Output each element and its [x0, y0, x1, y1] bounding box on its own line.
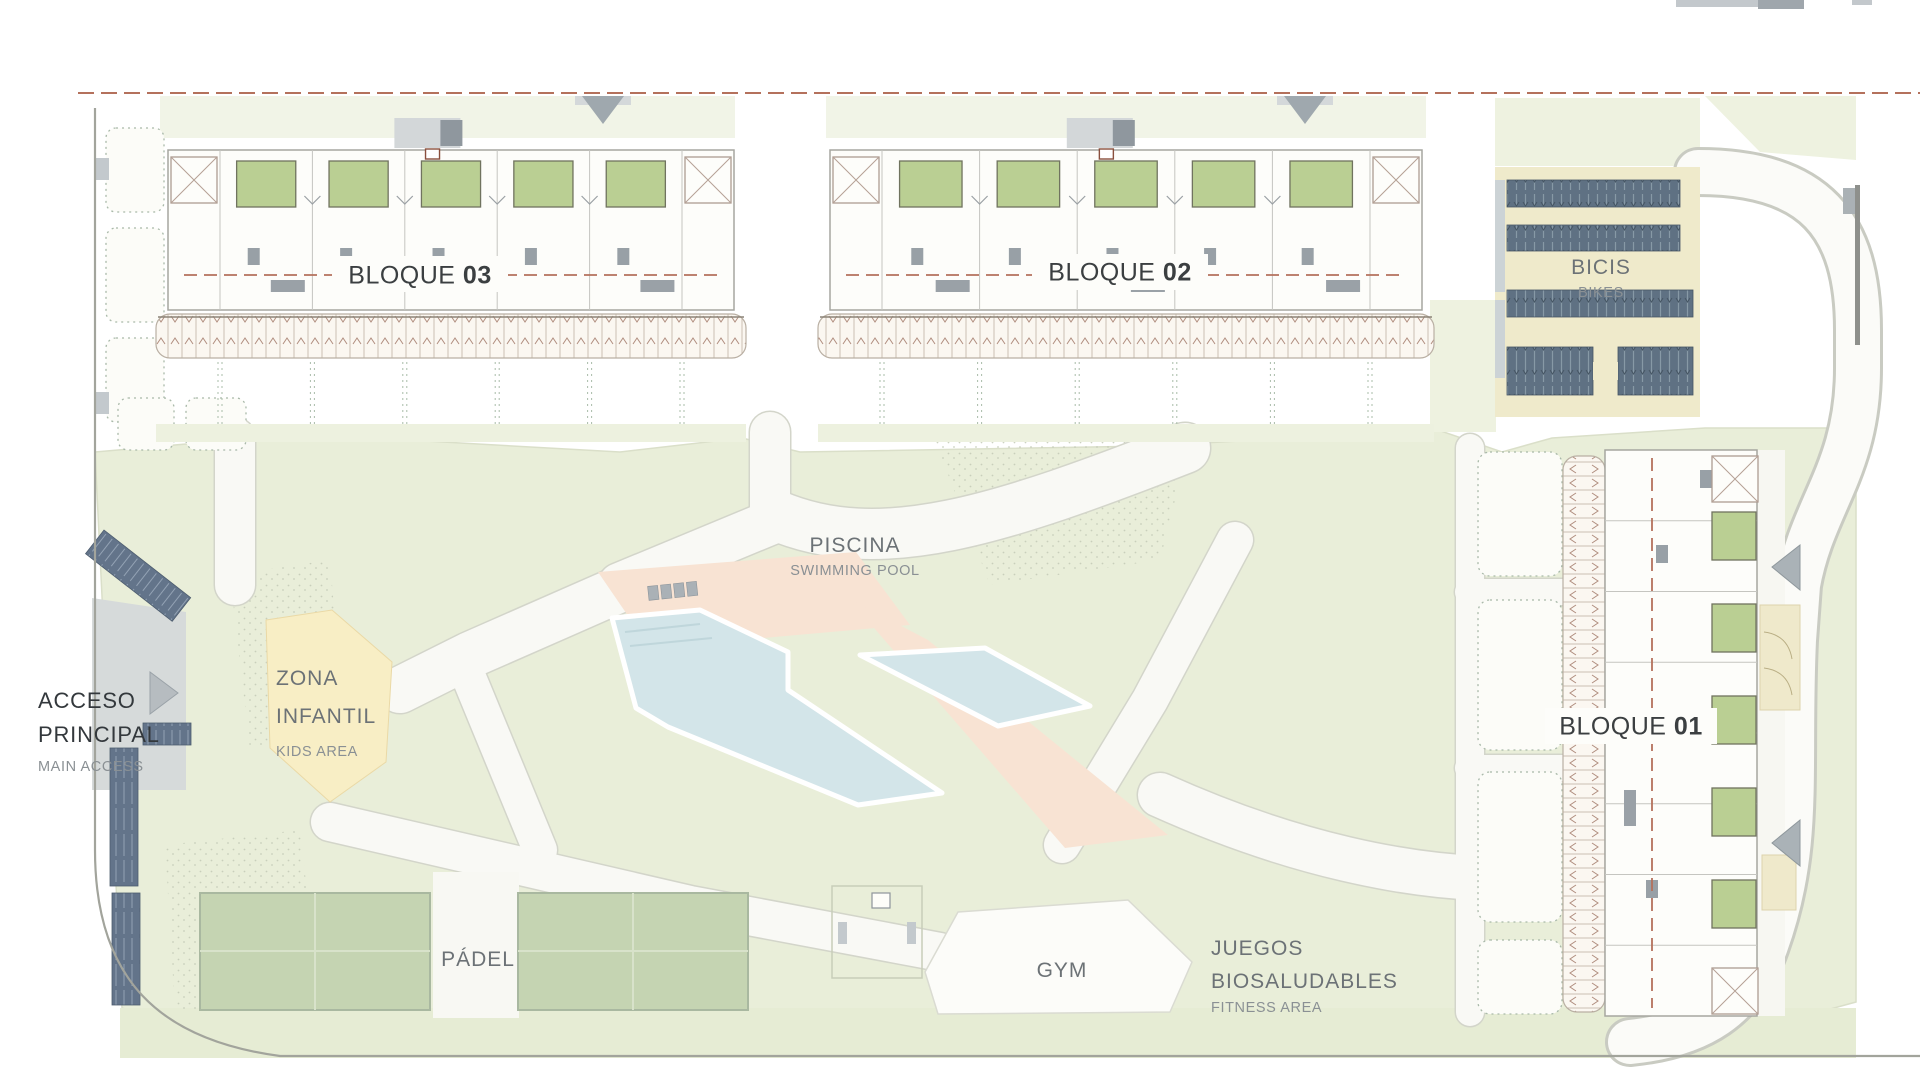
top-corner-marks [1676, 0, 1872, 9]
label-bloque-03: BLOQUE 03 [348, 262, 491, 291]
label-fitness-area: JUEGOS BIOSALUDABLES FITNESS AREA [1211, 932, 1398, 1018]
label-padel: PÁDEL [441, 945, 515, 975]
label-bloque-02: BLOQUE 02 [1048, 259, 1191, 288]
label-kids-area: ZONA INFANTIL KIDS AREA [276, 660, 376, 762]
label-pool: PISCINA SWIMMING POOL [790, 531, 919, 581]
label-bloque-01: BLOQUE 01 [1559, 713, 1702, 742]
label-main-access: ACCESO PRINCIPAL MAIN ACCESS [38, 684, 160, 777]
label-bikes: BICIS BIKES [1571, 253, 1631, 303]
site-plan: BLOQUE 03 BLOQUE 02 BLOQUE 01 BICIS BIKE… [0, 0, 1920, 1080]
site-plan-drawing [0, 0, 1920, 1080]
label-gym: GYM [1037, 956, 1088, 986]
